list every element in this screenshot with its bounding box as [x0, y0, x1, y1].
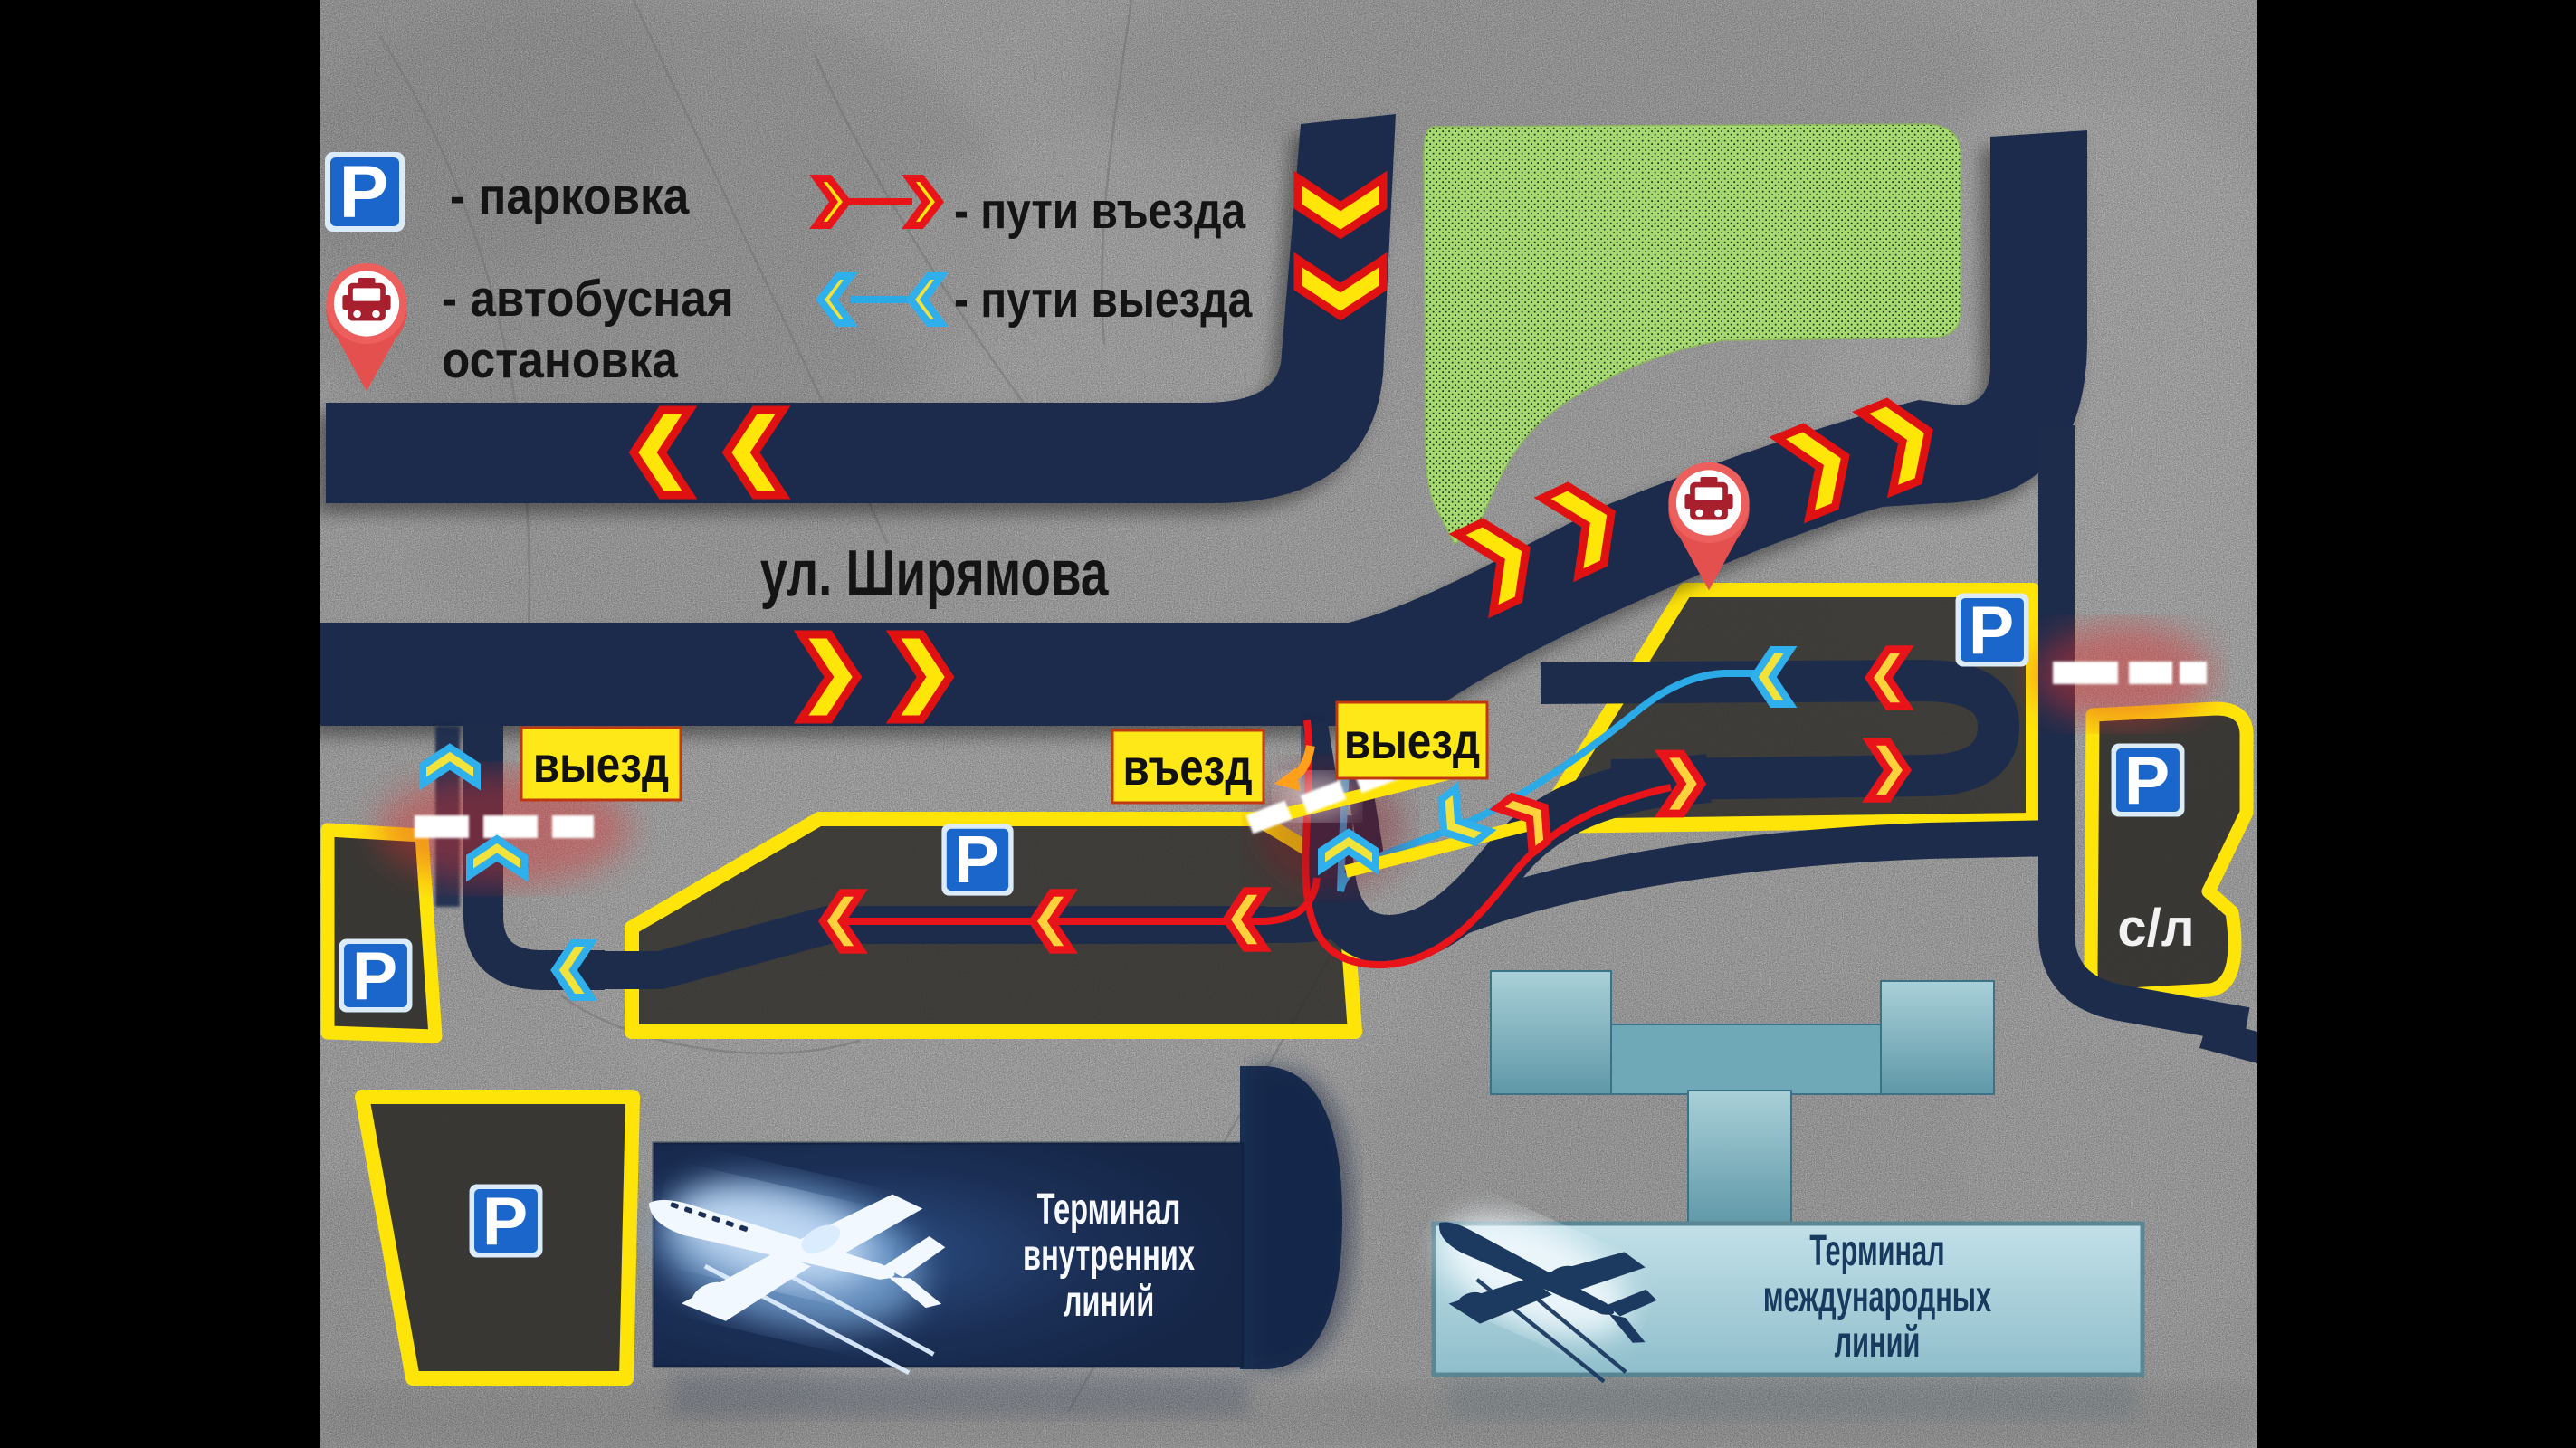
svg-text:ул. Ширямова: ул. Ширямова — [760, 537, 1109, 610]
svg-text:Терминал: Терминал — [1037, 1185, 1181, 1234]
svg-text:выезд: выезд — [1344, 713, 1480, 769]
svg-text:- автобусная: - автобусная — [442, 271, 734, 328]
svg-text:- пути въезда: - пути въезда — [954, 182, 1246, 240]
svg-text:- пути выезда: - пути выезда — [954, 271, 1253, 329]
svg-text:- парковка: - парковка — [450, 168, 690, 225]
svg-text:линий: линий — [1835, 1318, 1921, 1367]
svg-text:въезд: въезд — [1122, 739, 1252, 795]
svg-text:внутренних: внутренних — [1023, 1231, 1195, 1280]
svg-text:остановка: остановка — [442, 332, 679, 389]
svg-text:международных: международных — [1763, 1272, 1992, 1321]
svg-text:с/л: с/л — [2117, 899, 2194, 957]
svg-text:линий: линий — [1064, 1277, 1155, 1326]
svg-text:Терминал: Терминал — [1809, 1226, 1944, 1275]
svg-text:выезд: выезд — [533, 737, 669, 793]
